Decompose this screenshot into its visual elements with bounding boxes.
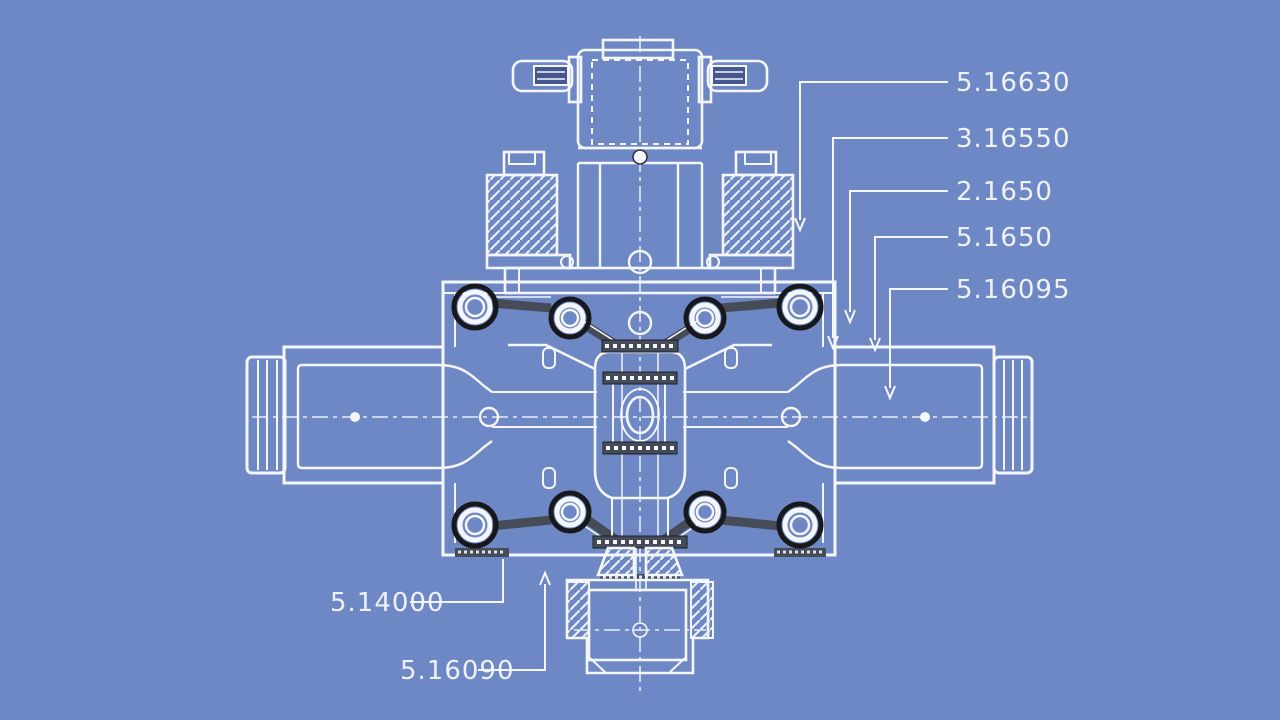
callout-label-r5: 5.16095 (956, 275, 1071, 305)
callout-label-r2: 3.16550 (956, 124, 1071, 154)
band-top-left (492, 303, 551, 308)
tick-row-body-right (774, 548, 826, 557)
callout-label-b2: 5.16090 (400, 656, 515, 686)
blueprint-canvas: 5.16630 3.16550 2.1650 5.1650 5.16095 5.… (0, 0, 1280, 720)
left-centerline-dot (350, 412, 360, 422)
bottom-port-hatch-right (691, 582, 713, 638)
actuator-pivot-dot (633, 150, 647, 164)
left-coil-hatched (487, 175, 557, 255)
left-wing-slot (534, 66, 568, 85)
callout-label-b1: 5.14000 (330, 588, 445, 618)
right-wing-slot (712, 66, 746, 85)
bottom-port-hatch-left (567, 582, 589, 638)
band-bottom-left (492, 520, 551, 526)
right-centerline-dot (920, 412, 930, 422)
band-bottom-right (721, 520, 780, 526)
callout-label-r1: 5.16630 (956, 68, 1071, 98)
band-top-right (721, 303, 780, 308)
valve-blueprint-drawing: 5.16630 3.16550 2.1650 5.1650 5.16095 5.… (0, 0, 1280, 720)
right-coil-hatched (723, 175, 793, 255)
callout-label-r3: 2.1650 (956, 177, 1053, 207)
callout-label-r4: 5.1650 (956, 223, 1053, 253)
